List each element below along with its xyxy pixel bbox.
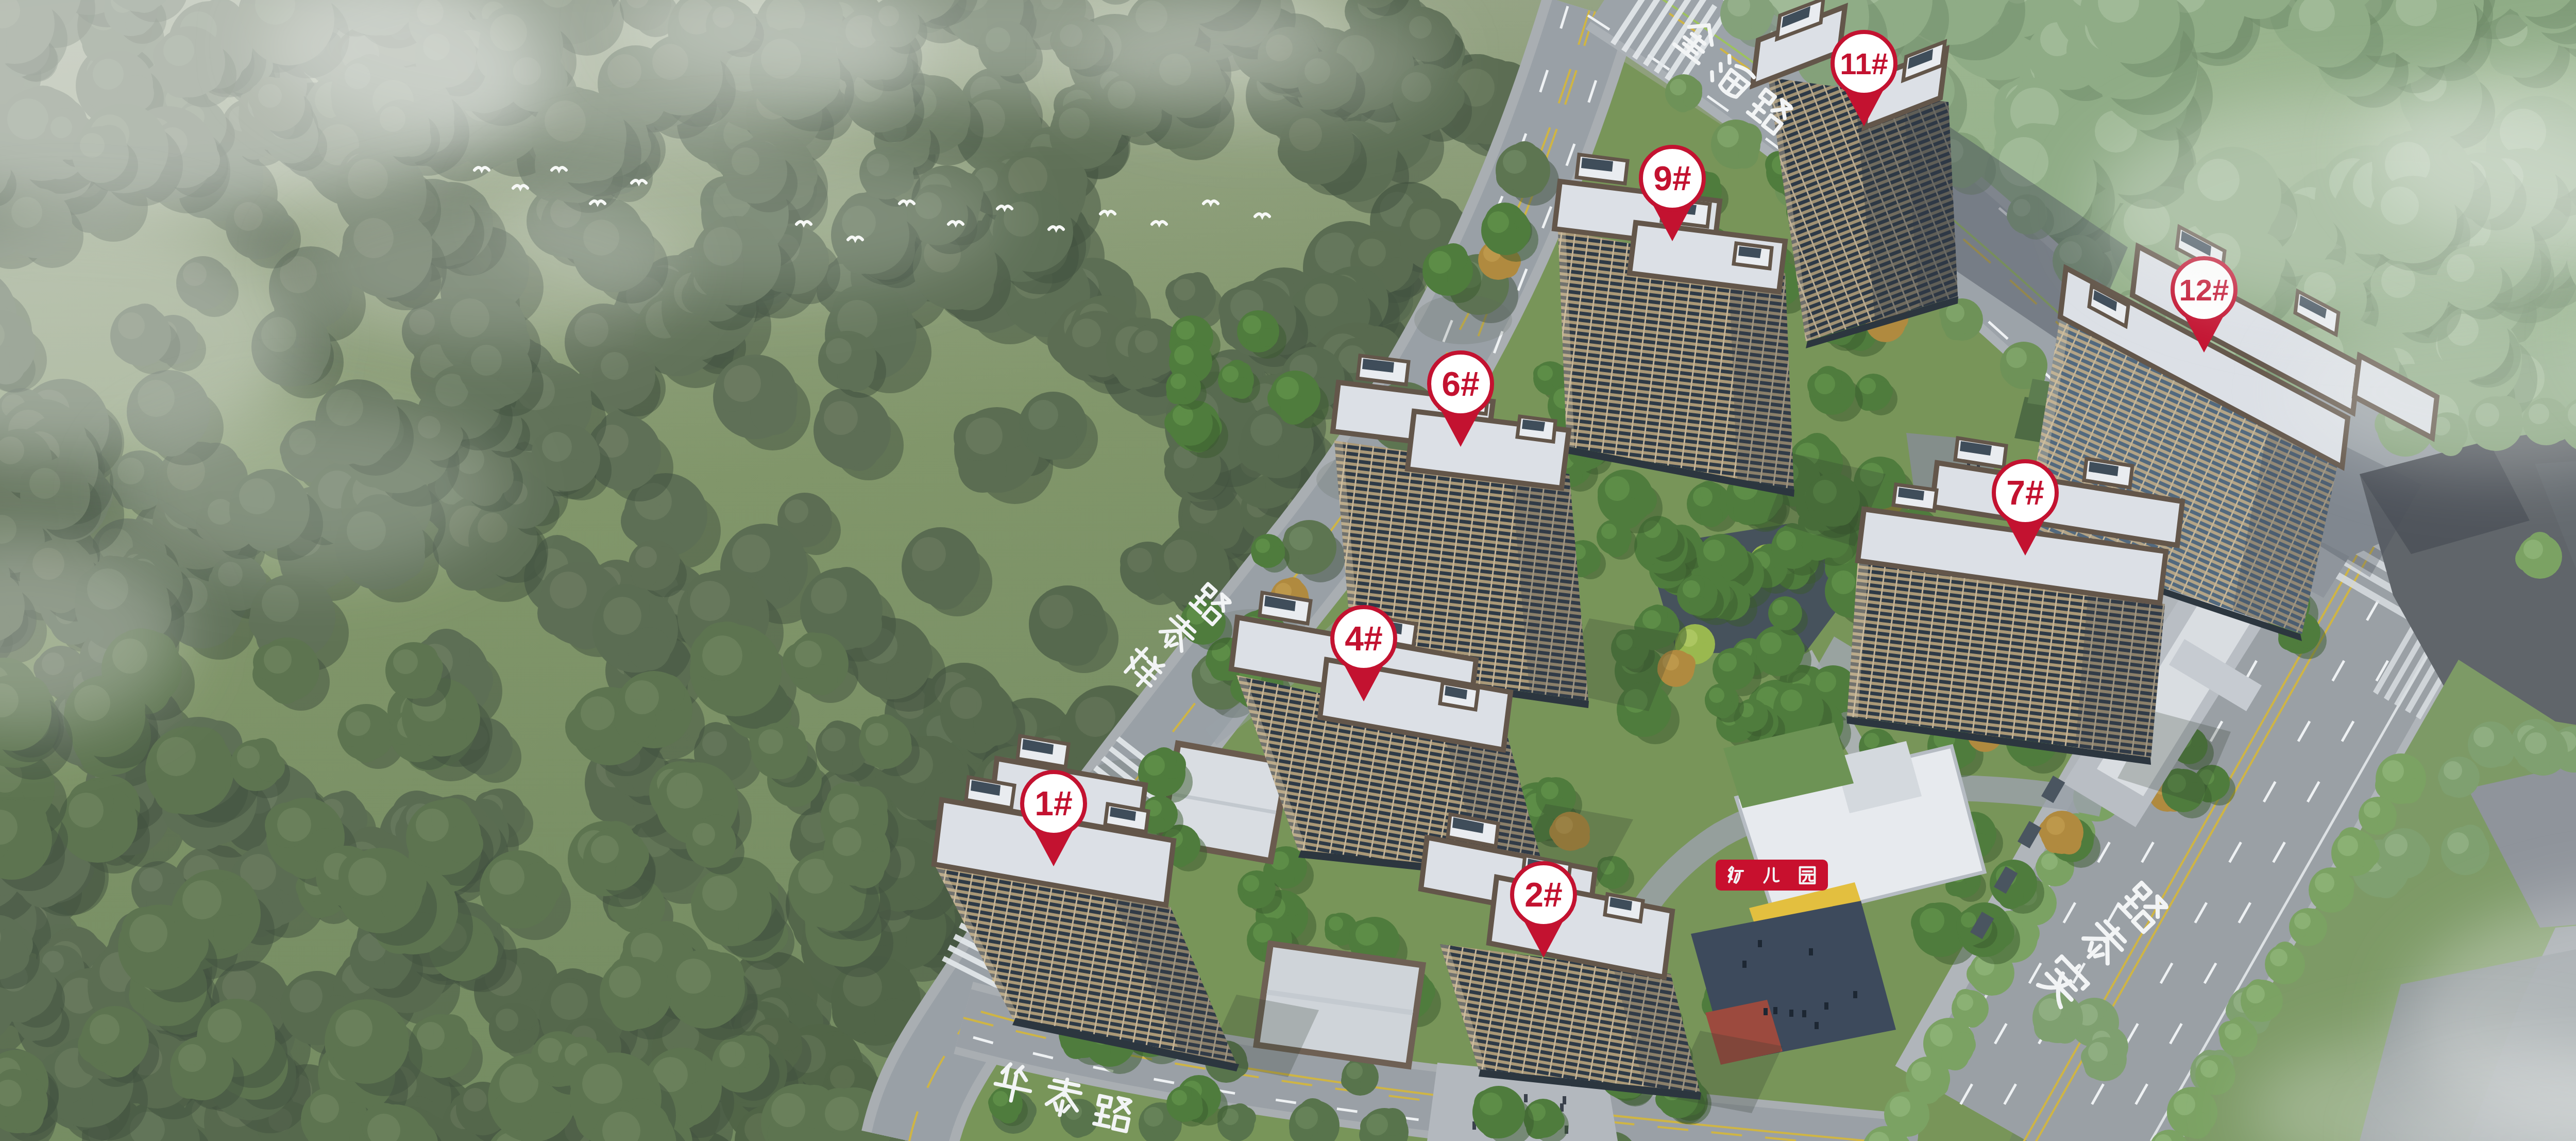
svg-text:4#: 4#: [1345, 619, 1382, 658]
svg-text:6#: 6#: [1442, 365, 1479, 403]
svg-text:1#: 1#: [1035, 784, 1072, 823]
svg-text:11#: 11#: [1840, 47, 1888, 80]
svg-text:9#: 9#: [1653, 159, 1691, 197]
svg-text:2#: 2#: [1524, 876, 1562, 914]
svg-text:7#: 7#: [2006, 474, 2044, 512]
